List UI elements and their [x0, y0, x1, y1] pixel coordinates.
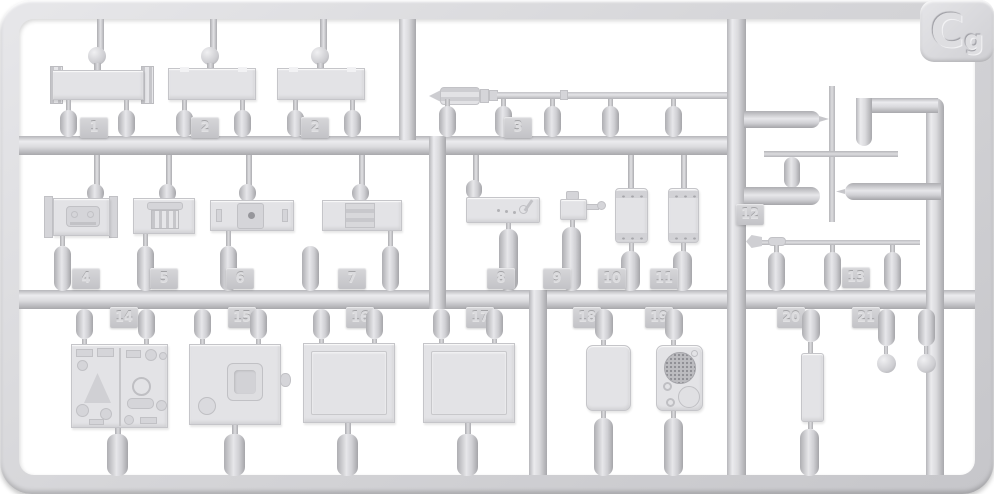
part-2b [277, 68, 365, 100]
runner-arm [744, 187, 820, 205]
rail-vertical-2 [429, 136, 446, 309]
gate-stem [359, 155, 365, 186]
part-8-rivet [497, 209, 500, 212]
part-14-detail [76, 349, 93, 357]
gate [800, 429, 819, 476]
gate [224, 434, 245, 476]
part-number-tab: 5 [150, 268, 178, 289]
gate-stem [320, 19, 327, 50]
sprue-code-subletter: g [964, 25, 983, 56]
sprue-code-letter: C [930, 2, 964, 60]
part-6-handle [216, 209, 222, 222]
gate [302, 246, 319, 291]
gate [194, 309, 211, 339]
gate [544, 106, 561, 137]
part-2-notch [347, 67, 356, 72]
part-14-detail [140, 417, 157, 424]
part-11-bolt-strip [669, 233, 698, 240]
part-19-detail [666, 398, 675, 407]
part-2-notch [238, 67, 247, 72]
part-number-tab: 11 [650, 268, 678, 289]
gate-neck [465, 423, 471, 434]
part-10-bolt-strip [616, 191, 647, 198]
runner-arm [845, 183, 941, 200]
gate [784, 157, 800, 188]
part-number-tab: 10 [598, 268, 626, 289]
gate-neck [671, 411, 676, 418]
part-4-flange [44, 196, 53, 238]
part-21-disc [877, 354, 896, 373]
part-19 [656, 345, 703, 411]
part-18 [586, 345, 631, 411]
gate-neck [808, 342, 813, 353]
part-10-bolt-strip [616, 233, 647, 240]
part-17 [423, 343, 515, 423]
gate [138, 309, 155, 339]
gate-neck [388, 231, 393, 246]
gate-neck [60, 236, 65, 246]
gate-stem [97, 19, 104, 50]
gate-neck [924, 346, 928, 354]
part-1 [52, 70, 144, 100]
part-14-detail [126, 350, 141, 358]
part-4-detail [70, 222, 96, 225]
part-2 [168, 68, 256, 100]
gate [665, 309, 683, 340]
gate-stem [166, 155, 172, 186]
rail-right-runner [926, 98, 944, 475]
gate-neck [808, 422, 813, 429]
part-4-detail [87, 211, 94, 218]
gate-stem [473, 155, 479, 183]
gate-stem [94, 155, 100, 186]
part-14-detail [132, 377, 151, 396]
part-number-tab: 20 [777, 307, 805, 328]
part-14-detail [89, 419, 104, 425]
part-9-arm-knob [597, 201, 606, 210]
part-14-detail [145, 349, 157, 361]
part-7-box [345, 203, 375, 228]
gate-neck [601, 411, 606, 418]
gate [802, 309, 820, 342]
gate [918, 309, 935, 346]
gate [457, 434, 478, 476]
part-16 [303, 343, 395, 423]
gate [60, 110, 77, 137]
part-14-detail [159, 352, 167, 360]
gate-stem [628, 155, 634, 189]
part-number-tab: 14 [110, 307, 138, 328]
part-3-collar [560, 90, 568, 100]
part-6-handle [282, 209, 288, 222]
part-15 [189, 344, 281, 425]
part-19-detail [691, 350, 698, 357]
part-14-detail [84, 373, 111, 403]
part-rod-horizontal [764, 151, 898, 157]
part-8-rivet [513, 211, 516, 214]
gate [824, 252, 841, 291]
part-19-grille [664, 352, 696, 384]
part-17-panel-face [431, 351, 507, 415]
gate [344, 110, 361, 137]
part-number-tab: 9 [543, 268, 571, 289]
gate [313, 309, 330, 339]
gate [234, 110, 251, 137]
part-19-detail [678, 386, 700, 408]
rail-vertical-3 [529, 290, 547, 475]
gate [768, 252, 785, 291]
part-number-tab: 7 [338, 268, 366, 289]
part-6-hatch-knob [248, 212, 255, 219]
gate [594, 418, 613, 476]
part-number-tab: 2 [191, 117, 219, 138]
part-number-tab: 21 [852, 307, 880, 328]
part-21-disc [917, 354, 936, 373]
gate [439, 106, 456, 137]
part-15-cap-detail [198, 397, 216, 415]
gate [250, 309, 267, 339]
part-5-lid [147, 202, 183, 210]
rail-vertical-4 [727, 19, 746, 475]
gate [878, 309, 895, 346]
part-14-detail [76, 404, 89, 417]
gate [382, 246, 399, 291]
gate-neck [226, 231, 231, 246]
part-19-detail [663, 382, 672, 391]
gate [366, 309, 383, 339]
part-number-tab: 6 [226, 268, 254, 289]
gate [76, 309, 93, 339]
part-9 [560, 199, 587, 220]
part-5-box [151, 210, 179, 229]
part-4-flange [109, 196, 118, 238]
gate-neck [232, 425, 238, 434]
rail-upper [19, 136, 746, 155]
gate [486, 309, 503, 339]
runner-arm [744, 111, 820, 128]
part-number-tab: 2 [301, 117, 329, 138]
gate-neck [143, 234, 148, 246]
part-2-notch [289, 67, 298, 72]
part-number-tab: 13 [842, 267, 870, 288]
part-number-tab: 12 [736, 204, 764, 225]
gate-neck [884, 346, 888, 354]
part-3-barrel [497, 92, 727, 99]
part-15-hinge-knob [280, 373, 291, 387]
gate [595, 309, 613, 340]
gate [884, 252, 901, 291]
part-14 [71, 344, 168, 428]
gate-stem [681, 155, 687, 189]
part-4-detail [71, 211, 78, 218]
part-14-detail [124, 415, 134, 425]
part-14-detail [127, 398, 154, 409]
part-number-tab: 4 [72, 268, 100, 289]
part-11-bolt-strip [669, 191, 698, 198]
gate-stem [210, 19, 217, 50]
gate [118, 110, 135, 137]
part-14-divider [119, 348, 121, 426]
part-15-hatch-inner [234, 370, 256, 394]
gate [602, 106, 619, 137]
gate-stem [246, 155, 252, 186]
gate [54, 246, 71, 291]
rail-right-runner-stub [856, 98, 872, 146]
part-2-notch [180, 67, 189, 72]
part-14-detail [77, 360, 88, 371]
gate [664, 418, 683, 476]
part-number-tab: 8 [487, 268, 515, 289]
rail-lower [19, 290, 975, 309]
gate [665, 106, 682, 137]
gate [337, 434, 358, 476]
part-number-tab: 3 [504, 117, 532, 138]
part-3-collar [480, 89, 489, 103]
part-number-tab: 1 [80, 117, 108, 138]
part-20 [801, 353, 824, 422]
part-8-rivet [505, 210, 508, 213]
part-14-detail [97, 348, 114, 357]
rail-vertical-1 [399, 19, 416, 140]
sprue-photo: C g 1 2 2 3 [0, 0, 994, 494]
sprue-code-tab: C g [920, 0, 994, 62]
gate-neck [345, 423, 351, 434]
gate [107, 434, 128, 476]
gate [433, 309, 450, 339]
part-16-panel-face [311, 351, 387, 415]
part-14-detail [156, 400, 167, 411]
